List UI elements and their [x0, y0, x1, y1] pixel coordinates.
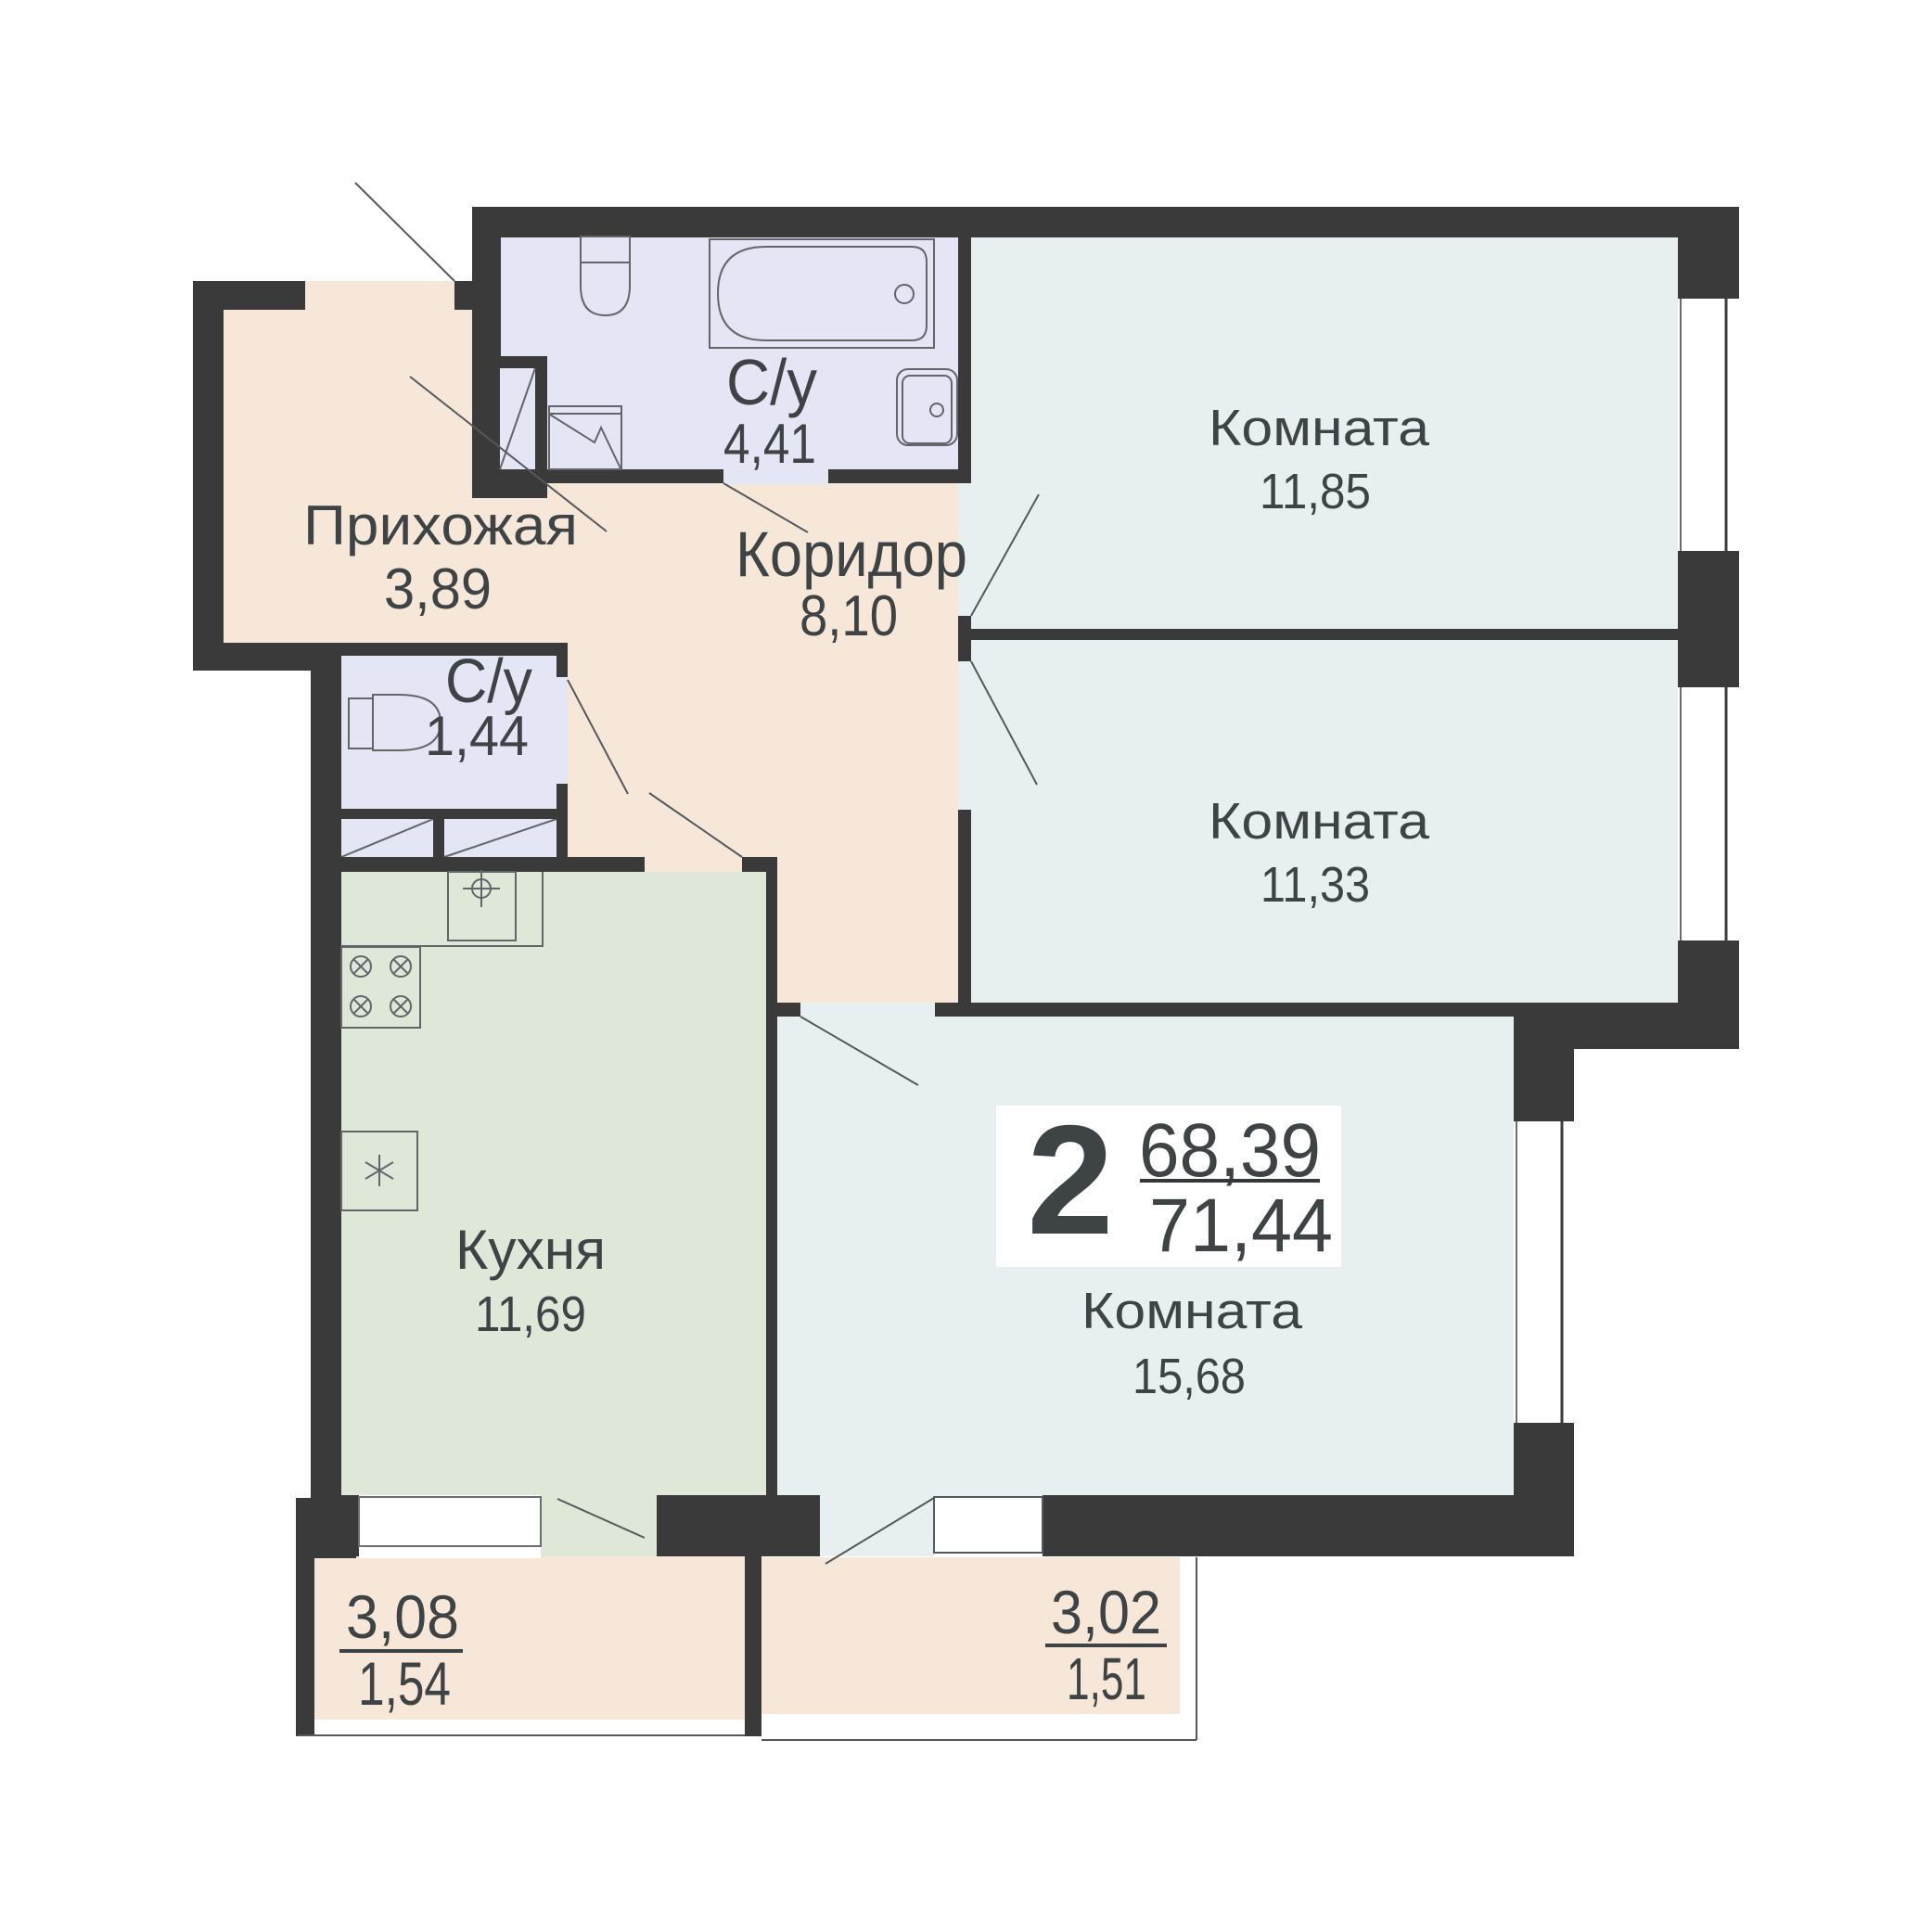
svg-text:3,02: 3,02 — [1051, 1578, 1161, 1646]
svg-text:Кухня: Кухня — [455, 1219, 606, 1281]
svg-text:3,08: 3,08 — [346, 1582, 459, 1651]
svg-text:1,44: 1,44 — [425, 705, 529, 767]
svg-text:11,85: 11,85 — [1260, 464, 1371, 519]
svg-text:Коридор: Коридор — [736, 518, 967, 590]
svg-text:11,33: 11,33 — [1260, 857, 1370, 913]
svg-text:71,44: 71,44 — [1149, 1184, 1333, 1268]
svg-text:15,68: 15,68 — [1132, 1349, 1246, 1404]
svg-text:8,10: 8,10 — [800, 584, 898, 648]
svg-text:С/у: С/у — [726, 346, 817, 418]
svg-text:Комната: Комната — [1081, 1282, 1302, 1339]
svg-text:Комната: Комната — [1209, 399, 1429, 456]
svg-text:1,51: 1,51 — [1067, 1645, 1146, 1712]
svg-text:Прихожая: Прихожая — [303, 494, 578, 557]
svg-text:1,54: 1,54 — [358, 1649, 451, 1718]
svg-text:3,89: 3,89 — [384, 557, 492, 621]
svg-text:Комната: Комната — [1209, 792, 1429, 850]
svg-text:4,41: 4,41 — [723, 413, 816, 475]
svg-text:11,69: 11,69 — [475, 1286, 586, 1342]
svg-text:2: 2 — [1027, 1093, 1113, 1267]
